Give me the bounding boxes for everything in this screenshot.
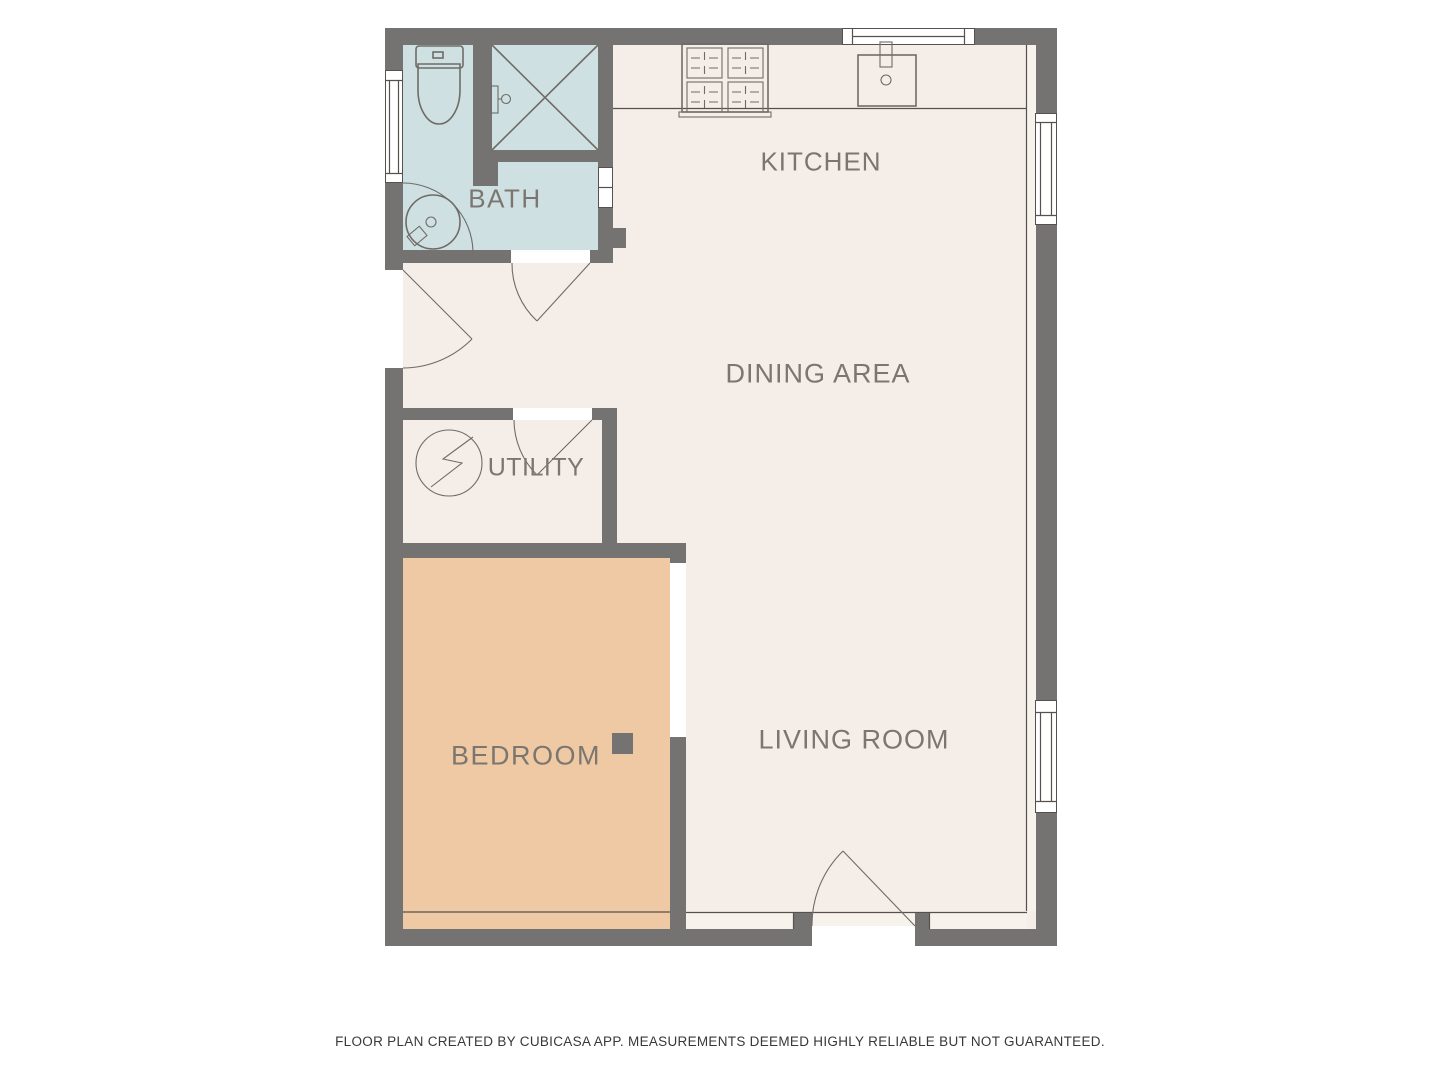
- wall-bottom-pier-left: [793, 913, 812, 929]
- column-marker: [612, 733, 633, 754]
- room-label-bath: BATH: [468, 184, 541, 215]
- bath-floor: [403, 45, 598, 250]
- disclaimer-text: FLOOR PLAN CREATED BY CUBICASA APP. MEAS…: [0, 1034, 1440, 1049]
- window-bath-interior: [598, 168, 613, 208]
- wall-shower-left: [473, 45, 492, 162]
- wall-shower-bottom: [473, 150, 598, 162]
- room-label-bedroom: BEDROOM: [451, 741, 601, 772]
- window-kitchen-right: [1035, 114, 1057, 225]
- window-bath-left: [385, 71, 403, 183]
- side-entry-door-opening: [385, 270, 403, 368]
- bath-door-opening: [511, 250, 590, 263]
- wall-shower-stub: [473, 162, 498, 186]
- floor-plan: BATH KITCHEN DINING AREA UTILITY BEDROOM…: [385, 28, 1057, 946]
- room-label-living: LIVING ROOM: [758, 725, 949, 756]
- window-living-right: [1035, 701, 1057, 813]
- main-entry-door-opening: [812, 926, 915, 946]
- wall-bedroom-top: [385, 543, 686, 558]
- wall-bottom: [385, 929, 1057, 946]
- room-label-kitchen: KITCHEN: [760, 147, 881, 178]
- wall-bath-right: [598, 28, 613, 263]
- bedroom-passage-opening: [670, 563, 686, 737]
- wall-notch: [613, 228, 626, 248]
- room-label-dining: DINING AREA: [725, 359, 910, 390]
- room-label-utility: UTILITY: [488, 454, 585, 483]
- wall-utility-right: [602, 408, 617, 543]
- window-kitchen-top: [843, 28, 975, 45]
- wall-bottom-pier-right: [915, 913, 930, 929]
- floor-plan-drawing: [385, 28, 1057, 946]
- utility-door-opening: [513, 408, 592, 420]
